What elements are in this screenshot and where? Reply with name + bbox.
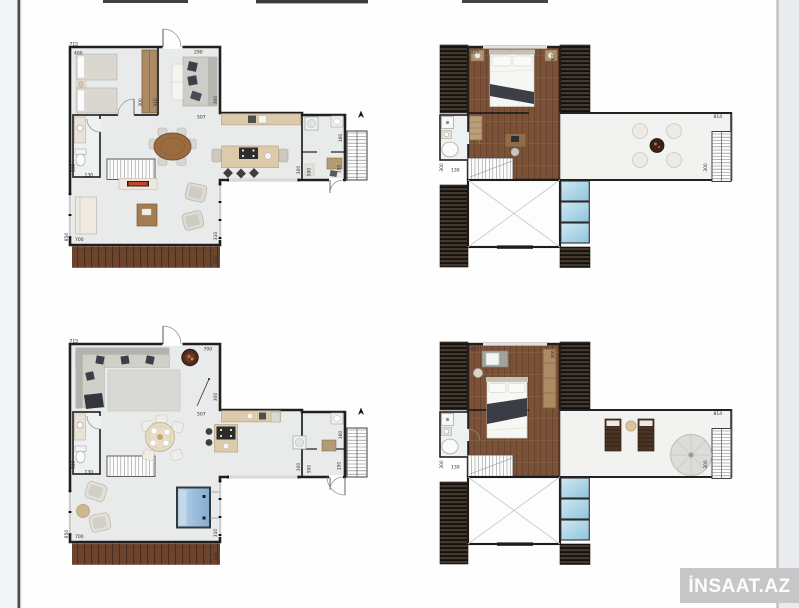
fireplace [119, 179, 157, 190]
sun-lounger [605, 419, 621, 451]
dim-label: 700 [75, 237, 84, 243]
dim-label: 814 [714, 114, 723, 120]
chair [633, 124, 648, 139]
bed [76, 88, 117, 113]
floor-plan-sheet: 715 400 290 300 310 300 507 300 130 700 … [0, 0, 799, 608]
fire-pit [650, 139, 664, 153]
pouf [77, 505, 90, 518]
cropped-content-artifact [103, 0, 548, 3]
dim-label: 310 [213, 529, 219, 538]
dim-label: 300 [213, 96, 219, 105]
double-bed [489, 50, 535, 107]
stool [206, 439, 213, 446]
chair [633, 153, 648, 168]
dim-label: 425 [471, 50, 480, 56]
dim-label: 130 [451, 465, 460, 471]
dim-label: 300 [703, 163, 709, 172]
dim-label: 700 [204, 347, 213, 353]
dim-label: 100 [213, 552, 219, 561]
dim-label: 850 [64, 233, 70, 242]
dim-label: 300 [138, 98, 144, 107]
chair [511, 148, 519, 156]
bed [76, 54, 117, 80]
sun-lounger [638, 419, 654, 451]
dim-label: 300 [439, 460, 445, 469]
right-margin [779, 0, 799, 608]
page-spine-line [18, 0, 21, 608]
dim-label: 300 [296, 463, 302, 472]
dim-label: 130 [451, 168, 460, 174]
stool [474, 369, 483, 378]
left-margin [0, 0, 18, 608]
dim-label: 300 [296, 166, 302, 175]
dim-label: 715 [70, 338, 79, 344]
floor-plans-image: 715 400 290 300 310 300 507 300 130 700 … [0, 0, 799, 608]
dim-label: 150 [337, 165, 343, 174]
dim-label: 160 [338, 134, 344, 143]
dim-label: 715 [70, 41, 79, 47]
watermark: İNSAAT.AZ [680, 568, 799, 603]
chair [667, 153, 682, 168]
dim-label: 300 [71, 461, 77, 470]
dim-label: 300 [703, 460, 709, 469]
table [322, 440, 336, 451]
dim-label: 300 [439, 163, 445, 172]
dim-label: 850 [64, 530, 70, 539]
dim-label: 130 [85, 173, 94, 179]
rug [108, 370, 180, 411]
dim-label: 160 [338, 431, 344, 440]
dim-label: 300 [551, 350, 557, 359]
armchair [184, 182, 207, 203]
dim-label: 300 [551, 53, 557, 62]
mirror [486, 353, 499, 365]
dim-label: 814 [714, 411, 723, 417]
dim-label: 310 [153, 98, 159, 107]
dim-label: 100 [213, 255, 219, 264]
jacuzzi [177, 488, 210, 528]
armchair [88, 512, 111, 533]
dim-label: 130 [85, 470, 94, 476]
round-fireplace [182, 349, 198, 365]
page-right-edge [776, 0, 778, 608]
chair [667, 124, 682, 139]
dim-label: 700 [75, 534, 84, 540]
watermark-text: İNSAAT.AZ [688, 576, 790, 597]
dim-label: 507 [197, 115, 206, 121]
dim-label: 590 [307, 465, 313, 474]
dim-label: 400 [74, 51, 83, 57]
dim-label: 310 [213, 232, 219, 241]
bed [486, 377, 528, 438]
dim-label: 300 [71, 164, 77, 173]
lamp [78, 82, 83, 87]
dim-label: 590 [307, 168, 313, 177]
living-room-sofa [172, 57, 217, 106]
dim-label: 290 [194, 50, 203, 56]
side-table [626, 421, 636, 431]
stool [206, 428, 213, 435]
dim-label: 425 [471, 347, 480, 353]
bench [76, 197, 97, 234]
dim-label: 300 [213, 393, 219, 402]
dim-label: 507 [197, 412, 206, 418]
dim-label: 150 [337, 462, 343, 471]
